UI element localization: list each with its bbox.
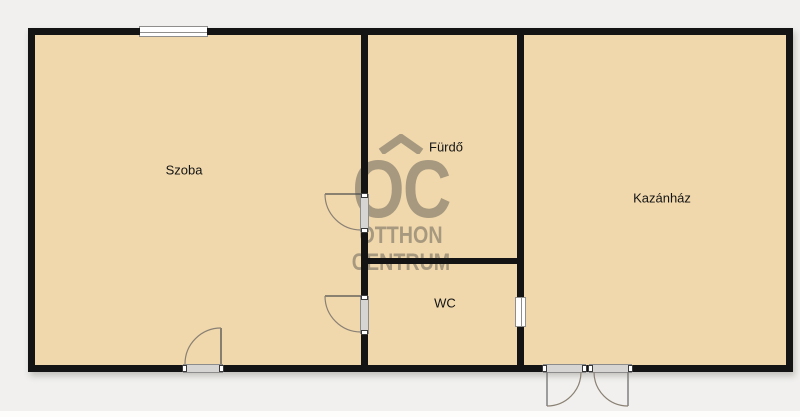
floor-plan-canvas: OC OTTHON CENTRUM [0,0,800,417]
wc-door-swing-icon [325,296,361,332]
room-label-wc: WC [434,296,456,311]
room-label-kazanhaz: Kazánház [633,191,691,206]
room-label-furdo: Fürdő [429,140,463,155]
bottom-margin-strip [0,411,800,417]
szoba-entry-door-swing-icon [185,328,221,364]
door-swings-layer [0,0,800,417]
furdo-door-swing-icon [325,194,361,230]
room-label-szoba: Szoba [166,163,203,178]
kazanhaz-double-door-swing-icon [547,372,628,406]
